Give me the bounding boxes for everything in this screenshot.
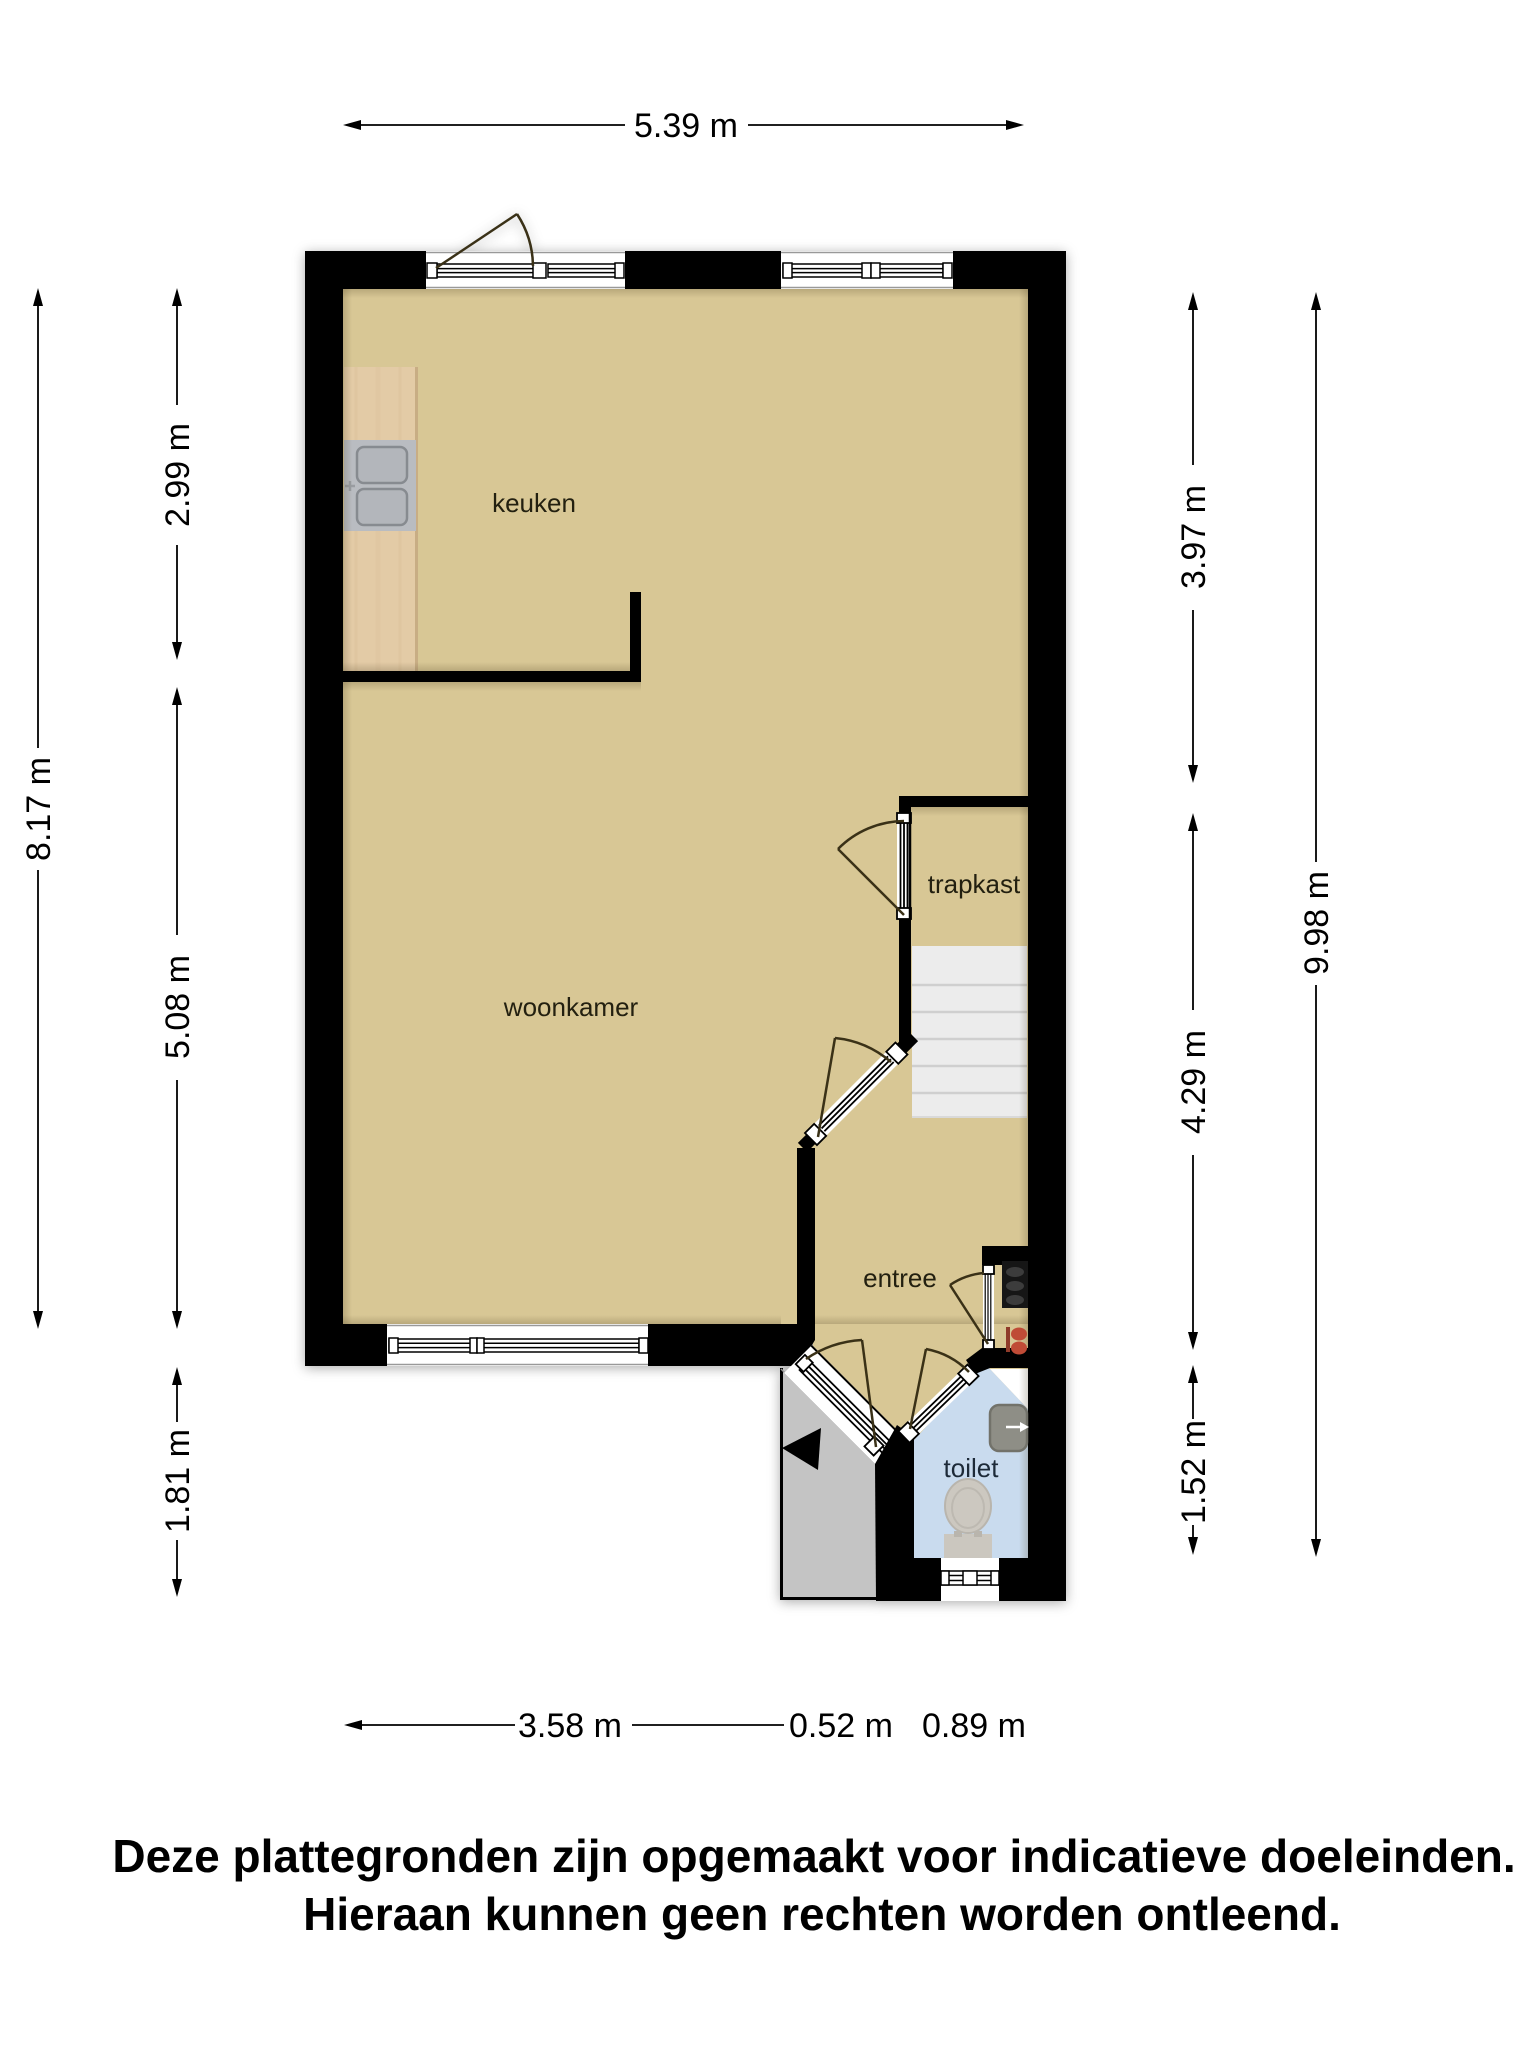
svg-text:5.39 m: 5.39 m (634, 107, 738, 145)
svg-text:entree: entree (863, 1263, 937, 1293)
svg-text:1.81 m: 1.81 m (159, 1429, 197, 1533)
svg-text:3.97 m: 3.97 m (1175, 485, 1213, 589)
svg-text:1.52 m: 1.52 m (1175, 1420, 1213, 1524)
svg-text:4.29 m: 4.29 m (1175, 1030, 1213, 1134)
svg-text:Deze plattegronden zijn opgema: Deze plattegronden zijn opgemaakt voor i… (112, 1830, 1515, 1882)
svg-text:keuken: keuken (492, 488, 576, 518)
svg-text:0.52 m: 0.52 m (789, 1707, 893, 1745)
svg-text:3.58 m: 3.58 m (518, 1707, 622, 1745)
svg-text:5.08 m: 5.08 m (159, 955, 197, 1059)
svg-text:9.98 m: 9.98 m (1298, 871, 1336, 975)
svg-text:Hieraan kunnen geen rechten wo: Hieraan kunnen geen rechten worden ontle… (303, 1888, 1341, 1940)
svg-text:trapkast: trapkast (928, 869, 1021, 899)
svg-text:woonkamer: woonkamer (503, 992, 639, 1022)
svg-text:toilet: toilet (944, 1453, 1000, 1483)
svg-text:8.17 m: 8.17 m (20, 757, 58, 861)
svg-text:0.89 m: 0.89 m (922, 1707, 1026, 1745)
svg-text:2.99 m: 2.99 m (159, 423, 197, 527)
